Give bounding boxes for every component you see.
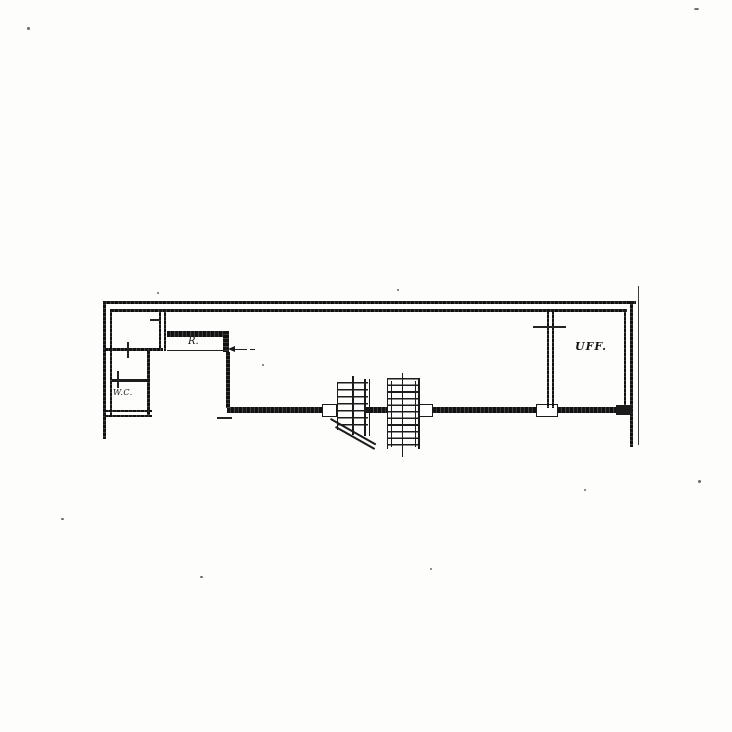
scanned-floorplan-sheet: W.C. R. UFF. <box>0 0 732 732</box>
wall-left-outer <box>103 301 106 439</box>
wall-wc-right <box>147 351 150 417</box>
stair-small-right-edge-a <box>364 379 366 436</box>
scan-speck <box>157 292 159 294</box>
stair-large-left-edge-a <box>387 378 389 449</box>
scan-speck <box>584 489 586 491</box>
wall-bottom-seg-left <box>227 407 326 413</box>
room-label-wc: W.C. <box>113 388 133 397</box>
scan-speck <box>430 568 432 570</box>
wall-top-inner <box>111 309 627 312</box>
stair-large-right-edge-b <box>418 378 420 449</box>
stair-small-center-line <box>352 376 354 435</box>
entrance-arrow-shaft <box>234 349 247 351</box>
wall-tick-bottom-left <box>217 417 232 419</box>
entrance-arrow-dash <box>250 349 255 351</box>
wall-right-inner <box>624 309 626 409</box>
wall-entry-bottom <box>105 348 163 351</box>
door-mark-wc <box>117 371 119 388</box>
wall-bottom-right-corner <box>616 405 632 415</box>
scan-speck <box>397 289 399 291</box>
door-mark-office <box>533 326 566 328</box>
boundary-line <box>638 286 640 445</box>
door-mark-anteroom <box>127 342 129 358</box>
scan-speck <box>200 576 203 578</box>
door-threshold-left-stair <box>322 404 337 417</box>
room-label-office: UFF. <box>575 340 607 353</box>
room-label-storage: R. <box>188 336 199 347</box>
wall-bottom-seg-center <box>433 407 537 413</box>
wall-wc-bottom-b <box>105 415 152 417</box>
wall-entry-partition-a <box>159 309 161 351</box>
scan-speck <box>698 480 701 483</box>
scan-speck <box>694 8 699 10</box>
wall-entry-partition-b <box>164 309 166 351</box>
door-threshold-right-stair <box>418 404 433 417</box>
wall-storage-bottom <box>167 350 225 352</box>
wall-wc-bottom-a <box>105 410 152 412</box>
door-mark-entry <box>150 319 159 321</box>
entrance-arrow-icon <box>228 346 235 352</box>
wall-hall-left-vertical <box>226 352 230 408</box>
stair-large-left-edge-b <box>391 381 392 447</box>
wall-bottom-seg-right <box>558 407 616 413</box>
scan-speck <box>27 27 30 30</box>
scan-speck <box>61 518 64 520</box>
scan-speck <box>262 364 264 366</box>
stair-small-right-edge-b <box>369 379 371 436</box>
wall-left-inner <box>110 309 112 417</box>
stair-large-right-edge-a <box>415 381 416 447</box>
stair-large-center-line <box>402 373 404 457</box>
wall-right-outer <box>630 301 633 447</box>
wall-top-outer <box>103 301 636 304</box>
